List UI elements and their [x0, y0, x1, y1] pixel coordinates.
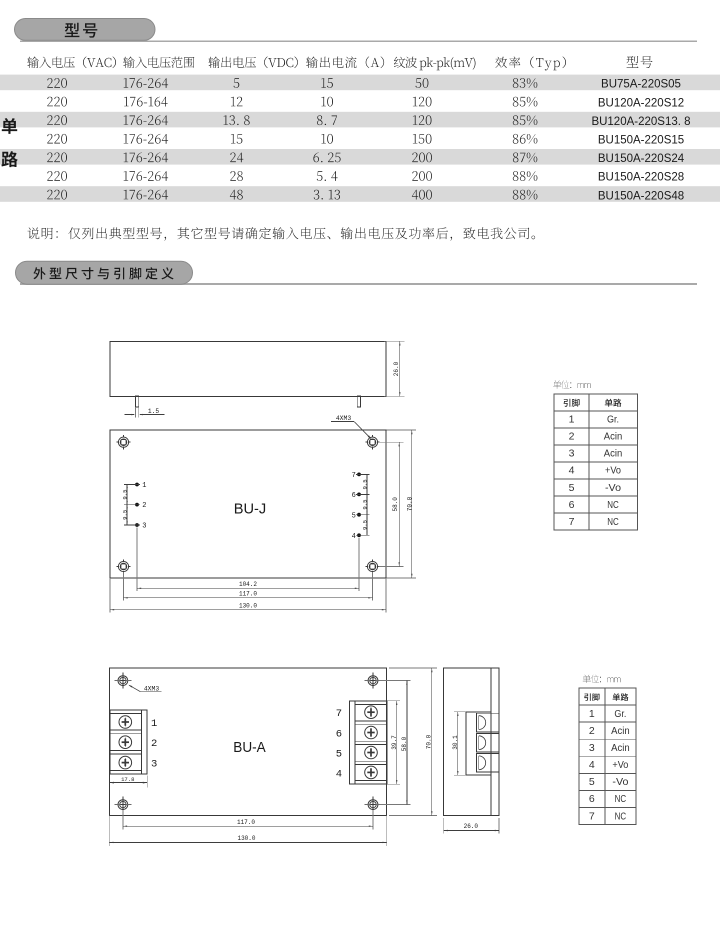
svg-text:BU150A-220S24: BU150A-220S24 — [598, 153, 685, 165]
svg-text:+Vo: +Vo — [605, 465, 621, 477]
svg-text:9.5: 9.5 — [362, 500, 369, 510]
svg-text:BU150A-220S28: BU150A-220S28 — [598, 172, 684, 184]
svg-text:39.7: 39.7 — [391, 735, 398, 750]
svg-text:Gr.: Gr. — [614, 708, 626, 720]
svg-text:-Vo: -Vo — [612, 776, 628, 788]
svg-text:4: 4 — [589, 759, 595, 771]
svg-text:7: 7 — [589, 810, 595, 822]
svg-text:3: 3 — [142, 523, 146, 531]
svg-text:NC: NC — [607, 516, 619, 528]
svg-text:BU120A-220S13. 8: BU120A-220S13. 8 — [591, 116, 690, 128]
svg-text:2: 2 — [569, 431, 575, 443]
svg-text:104.2: 104.2 — [239, 581, 257, 588]
svg-text:NC: NC — [615, 810, 627, 822]
svg-text:117.0: 117.0 — [237, 819, 255, 826]
svg-text:4: 4 — [352, 533, 356, 541]
svg-text:NC: NC — [615, 793, 627, 805]
svg-text:2: 2 — [151, 738, 157, 750]
svg-text:4: 4 — [569, 465, 575, 477]
svg-text:130.0: 130.0 — [237, 835, 255, 842]
svg-text:117.0: 117.0 — [239, 591, 257, 598]
svg-text:7: 7 — [569, 516, 575, 528]
svg-text:70.0: 70.0 — [425, 734, 432, 749]
svg-text:2: 2 — [142, 502, 146, 510]
svg-text:BU150A-220S15: BU150A-220S15 — [598, 135, 684, 147]
svg-text:4: 4 — [336, 768, 342, 780]
svg-text:9.5: 9.5 — [362, 520, 369, 530]
svg-text:6: 6 — [352, 492, 356, 500]
svg-text:7: 7 — [336, 708, 342, 720]
svg-text:Acin: Acin — [604, 431, 623, 443]
svg-text:BU-A: BU-A — [233, 739, 266, 756]
svg-text:-Vo: -Vo — [605, 482, 621, 494]
svg-text:BU-J: BU-J — [234, 501, 267, 518]
svg-text:6: 6 — [569, 499, 575, 511]
svg-text:130.0: 130.0 — [239, 602, 257, 609]
svg-text:Acin: Acin — [604, 448, 623, 460]
svg-text:9.5: 9.5 — [362, 479, 369, 489]
svg-text:1: 1 — [589, 708, 595, 720]
svg-text:5: 5 — [336, 749, 342, 761]
svg-text:5: 5 — [352, 512, 356, 520]
svg-text:+Vo: +Vo — [612, 759, 628, 771]
svg-text:BU150A-220S48: BU150A-220S48 — [598, 190, 684, 202]
svg-text:5: 5 — [589, 776, 595, 788]
svg-text:26.0: 26.0 — [464, 823, 479, 830]
svg-text:1: 1 — [151, 718, 157, 730]
svg-text:6: 6 — [336, 729, 342, 741]
svg-text:9.5: 9.5 — [121, 490, 128, 500]
svg-text:2: 2 — [589, 725, 595, 737]
svg-text:5: 5 — [569, 482, 575, 494]
svg-text:1: 1 — [142, 482, 146, 490]
svg-text:17.8: 17.8 — [121, 776, 134, 783]
svg-text:1: 1 — [569, 414, 575, 426]
svg-text:BU75A-220S05: BU75A-220S05 — [601, 79, 681, 91]
svg-text:3: 3 — [589, 742, 595, 754]
svg-text:BU120A-220S12: BU120A-220S12 — [598, 97, 684, 109]
svg-text:9.5: 9.5 — [121, 510, 128, 520]
svg-text:6: 6 — [589, 793, 595, 805]
svg-text:58.0: 58.0 — [401, 736, 408, 751]
svg-text:3: 3 — [569, 448, 575, 460]
svg-text:30.1: 30.1 — [452, 735, 459, 750]
svg-text:Acin: Acin — [611, 742, 630, 754]
svg-text:Acin: Acin — [611, 725, 630, 737]
svg-text:1.5: 1.5 — [148, 408, 159, 415]
svg-text:NC: NC — [607, 499, 619, 511]
svg-text:70.0: 70.0 — [406, 496, 413, 511]
svg-text:58.0: 58.0 — [392, 497, 399, 512]
svg-text:Gr.: Gr. — [607, 414, 619, 426]
svg-text:4XM3: 4XM3 — [336, 415, 352, 422]
svg-text:4XM3: 4XM3 — [144, 685, 160, 692]
svg-text:3: 3 — [151, 759, 157, 771]
svg-text:26.0: 26.0 — [393, 361, 400, 376]
svg-text:7: 7 — [352, 472, 356, 480]
